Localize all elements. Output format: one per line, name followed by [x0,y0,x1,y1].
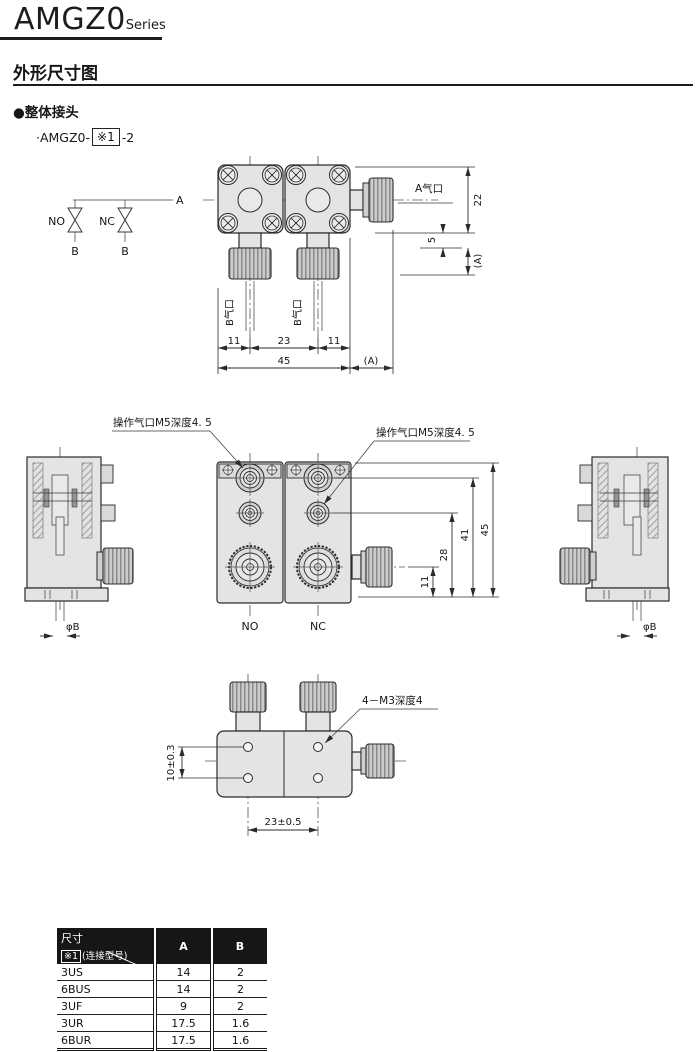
dim-45-front: 45 [480,524,491,537]
table-corner-cell: 尺寸 ※1(连接型号) [57,928,155,964]
cell-a: 17.5 [155,1032,212,1050]
series-name: AMGZ0 [14,2,126,37]
table-row: 3UF 9 2 [57,998,267,1015]
port-b-left-label: B气口 [223,299,236,326]
cell-model: 6BUS [57,981,155,998]
front-view: NO NC [217,453,405,633]
pilot-label-left: 操作气口M5深度4. 5 [113,416,212,429]
datasheet-page: AMGZ0Series 外形尺寸图 ●整体接头 ·AMGZ0- ※1 -2 NO… [0,0,700,1052]
corner-subtitle: ※1(连接型号) [61,948,150,963]
schematic-nc-label: NC [99,215,115,228]
table-row: 6BUR 17.5 1.6 [57,1032,267,1050]
cell-a: 17.5 [155,1015,212,1032]
phi-b-left-label: φB [66,622,80,633]
table-row: 6BUS 14 2 [57,981,267,998]
model-suffix: -2 [122,130,134,145]
phi-b-right-label: φB [643,622,657,633]
model-designation: ·AMGZ0- ※1 -2 [36,128,134,146]
table-row: 3UR 17.5 1.6 [57,1015,267,1032]
table-row: 3US 14 2 [57,964,267,981]
top-view-body [218,165,393,331]
dim-23: 23 [278,336,291,347]
right-section-view: φB [560,447,669,636]
top-view-drawing: 11 23 11 45 (A) 22 5 (A) A气口 B气口 B气口 [185,148,500,393]
dim-11-front: 11 [420,576,431,589]
dim-5: 5 [427,237,438,243]
dim-22: 22 [473,194,484,207]
corner-ref-badge: ※1 [61,950,81,963]
bottom-view-drawing: 4－M3深度4 10±0.3 23±0.5 [160,668,445,848]
column-header-a: A [155,928,212,964]
schematic-no-label: NO [48,215,65,228]
model-ref-box: ※1 [92,128,120,146]
table-header-row: 尺寸 ※1(连接型号) A B [57,928,267,964]
cell-model: 6BUR [57,1032,155,1050]
left-section-view: φB [25,447,133,636]
cell-b: 2 [212,964,267,981]
corner-title: 尺寸 [61,930,150,946]
dim-10-03: 10±0.3 [166,744,177,781]
cell-b: 2 [212,981,267,998]
pilot-label-right: 操作气口M5深度4. 5 [376,426,475,439]
cell-b: 2 [212,998,267,1015]
page-title: 外形尺寸图 [13,59,98,84]
dim-11-left: 11 [228,336,241,347]
cell-a: 14 [155,981,212,998]
dimension-table: 尺寸 ※1(连接型号) A B 3US 14 2 6BUS 14 2 3UF [57,928,267,1051]
column-header-b: B [212,928,267,964]
cell-a: 9 [155,998,212,1015]
dim-a-vertical: (A) [473,254,484,269]
dim-11-right: 11 [328,336,341,347]
cell-a: 14 [155,964,212,981]
cell-model: 3UF [57,998,155,1015]
front-no-label: NO [242,620,259,633]
model-prefix: ·AMGZ0- [36,130,90,145]
cell-b: 1.6 [212,1032,267,1050]
dim-41: 41 [460,529,471,542]
schematic-b-left-label: B [71,245,79,258]
front-nc-label: NC [310,620,326,633]
front-and-side-views: φB φB [0,405,700,655]
port-a-label: A气口 [415,182,443,195]
cell-b: 1.6 [212,1015,267,1032]
schematic-a-label: A [176,194,184,207]
schematic-lines [68,200,173,242]
cell-model: 3UR [57,1015,155,1032]
brand-underline [0,37,162,40]
valve-schematic: NO NC A B B [40,185,190,260]
thread-note-label: 4－M3深度4 [362,694,423,707]
port-b-right-label: B气口 [291,299,304,326]
title-underline [13,84,693,86]
dim-23-05: 23±0.5 [264,817,301,828]
subsection-title: ●整体接头 [13,101,79,121]
dim-a-horizontal: (A) [364,356,379,367]
schematic-b-right-label: B [121,245,129,258]
series-suffix: Series [126,18,166,33]
dim-28: 28 [439,549,450,562]
series-title: AMGZ0Series [14,2,166,37]
dim-45: 45 [278,356,291,367]
